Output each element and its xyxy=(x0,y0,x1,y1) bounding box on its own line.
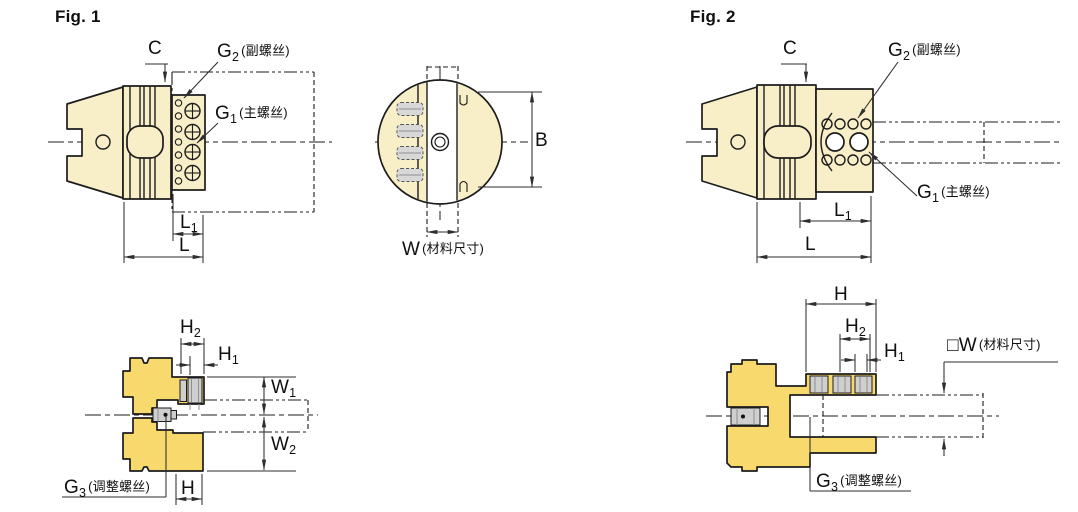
section2-dim-w xyxy=(944,362,1058,456)
front-view xyxy=(375,66,542,237)
fig2-side-view xyxy=(686,62,1063,263)
section2-label-h2: H2 xyxy=(845,317,866,336)
fig1-taper-shank xyxy=(67,87,123,198)
fig1-g2-leader xyxy=(184,62,218,98)
fig1-flange-boss xyxy=(127,126,163,158)
section1-label-w1: W1 xyxy=(271,378,296,397)
fig2-section-view xyxy=(706,299,1058,491)
fig1-label-l1: L1 xyxy=(180,213,198,232)
section1-label-g3: G3(调整螺丝) xyxy=(64,478,150,497)
section1-label-h: H xyxy=(181,479,195,498)
section2-label-h: H xyxy=(834,285,848,304)
section1-clamp-screws xyxy=(180,378,202,410)
section1-dim-h2 xyxy=(181,338,204,374)
section1-adjust-screw xyxy=(153,408,177,422)
section1-label-h1: H1 xyxy=(218,345,239,364)
fig2-label-c: C xyxy=(783,39,797,58)
fig1-label-g1: G1(主螺丝) xyxy=(215,104,288,123)
section1-label-w2: W2 xyxy=(271,435,296,454)
section2-label-h1: H1 xyxy=(884,342,905,361)
fig2-label-g2: G2(副螺丝) xyxy=(888,41,961,60)
fig2-label-l: L xyxy=(805,235,816,254)
section1-body-lower xyxy=(123,418,203,471)
section2-adjust-screw xyxy=(731,408,760,425)
fig1-label-l: L xyxy=(179,236,190,255)
fig2-title: Fig. 2 xyxy=(690,8,736,25)
section2-dim-h1 xyxy=(841,354,881,372)
fig2-label-g1: G1(主螺丝) xyxy=(917,183,990,202)
section1-bar-phantom xyxy=(203,400,308,432)
front-label-w: W(材料尺寸) xyxy=(402,240,484,259)
fig1-label-c: C xyxy=(148,39,162,58)
section2-label-g3: G3(调整螺丝) xyxy=(816,472,902,491)
section2-label-w: □W(材料尺寸) xyxy=(947,336,1041,355)
fig2-g1-leader xyxy=(869,152,917,196)
section1-dim-h1 xyxy=(176,356,218,375)
drawing-linework xyxy=(0,0,1078,512)
front-label-b: B xyxy=(535,131,548,150)
technical-drawing: Fig. 1 C G2(副螺丝) G1(主螺丝) L1 L B W(材料尺寸) … xyxy=(0,0,1078,512)
section1-label-h2: H2 xyxy=(180,318,201,337)
fig1-label-g2: G2(副螺丝) xyxy=(217,42,290,61)
fig1-c-leader xyxy=(145,64,168,82)
section2-clamp-screws xyxy=(810,376,872,393)
fig2-c-leader xyxy=(781,64,807,82)
fig1-title: Fig. 1 xyxy=(55,8,101,25)
fig2-flange-boss xyxy=(764,126,811,158)
fig2-label-l1: L1 xyxy=(834,201,852,220)
